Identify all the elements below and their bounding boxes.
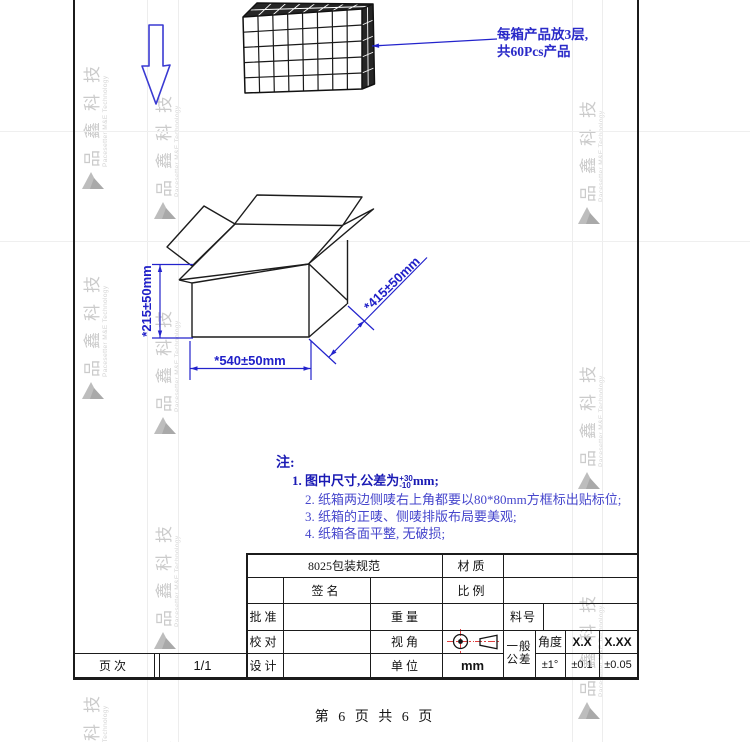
stack-leader-line bbox=[372, 39, 497, 48]
dim-width-label: *540±50mm bbox=[214, 353, 285, 368]
gridline bbox=[147, 0, 148, 742]
dim-depth-label: *415±50mm bbox=[361, 254, 423, 314]
tolerance-lower: -10 bbox=[399, 482, 413, 489]
dec2-tolerance-value: ±0.05 bbox=[599, 653, 637, 677]
note-1-unit: mm; bbox=[413, 473, 439, 488]
note-4: 4. 纸箱各面平整, 无破损; bbox=[305, 523, 445, 542]
stack-annotation-line2: 共60Pcs产品 bbox=[497, 43, 588, 60]
first-angle-projection-icon bbox=[447, 629, 501, 654]
frame-right-border bbox=[637, 0, 639, 680]
frame-bottom-border bbox=[73, 677, 638, 680]
page-index-value: 1/1 bbox=[159, 653, 246, 677]
note-1: 1. 图中尺寸,公差为+30-10mm; bbox=[292, 470, 439, 489]
watermark-en-text: Pacesetter M&E Technology bbox=[102, 247, 109, 377]
general-tolerance-line2: 公差 bbox=[507, 654, 532, 667]
watermark-cn-text: 品鑫科技 bbox=[574, 72, 599, 202]
dimension-width: *540±50mm bbox=[190, 341, 311, 380]
part-no-label: 料号 bbox=[503, 603, 543, 630]
unit-value: mm bbox=[442, 653, 503, 677]
watermark-cn-text: 品鑫科技 bbox=[150, 282, 175, 412]
dec1-label: X.X bbox=[565, 630, 599, 653]
table-line bbox=[154, 653, 155, 677]
design-label: 设计 bbox=[246, 653, 283, 677]
watermark-en-text: Pacesetter M&E Technology bbox=[102, 37, 109, 167]
signature-label: 签名 bbox=[283, 577, 370, 603]
dimension-depth: *415±50mm bbox=[309, 254, 427, 364]
watermark-logo-icon bbox=[152, 199, 178, 226]
angle-label: 角度 bbox=[535, 630, 565, 653]
watermark-cn-text: 品鑫科技 bbox=[78, 37, 103, 167]
weight-label: 重量 bbox=[370, 603, 442, 630]
watermark-logo-icon bbox=[152, 414, 178, 441]
dec2-label: X.XX bbox=[599, 630, 637, 653]
watermark-logo-icon bbox=[152, 629, 178, 656]
general-tolerance-label: 一般 公差 bbox=[503, 630, 535, 677]
view-angle-label: 视角 bbox=[370, 630, 442, 653]
note-1-tolerance: +30-10 bbox=[399, 475, 413, 489]
table-line bbox=[543, 603, 544, 630]
watermark-logo-icon bbox=[80, 169, 106, 196]
watermark-text: 品鑫科技Pacesetter M&E Technology bbox=[78, 247, 112, 377]
dec1-tolerance-value: ±0.1 bbox=[565, 653, 599, 677]
watermark-cn-text: 品鑫科技 bbox=[150, 67, 175, 197]
frame-left-border bbox=[73, 0, 75, 680]
angle-tolerance-value: ±1° bbox=[535, 653, 565, 677]
carton-drawing bbox=[167, 195, 374, 337]
page-index-label: 页次 bbox=[74, 653, 154, 677]
general-tolerance-line1: 一般 bbox=[507, 641, 532, 654]
check-label: 校对 bbox=[246, 630, 283, 653]
watermark-cn-text: 品鑫科技 bbox=[78, 247, 103, 377]
document-title: 8025包装规范 bbox=[246, 553, 442, 577]
stack-annotation-line1: 每箱产品放3层, bbox=[497, 26, 588, 43]
product-stack-drawing bbox=[243, 3, 375, 93]
unit-label: 单位 bbox=[370, 653, 442, 677]
watermark-unit: 品鑫科技Pacesetter M&E Technology bbox=[78, 255, 112, 405]
watermark-text: 品鑫科技Pacesetter M&E Technology bbox=[78, 37, 112, 167]
gridline bbox=[178, 0, 179, 742]
scale-label: 比例 bbox=[442, 577, 503, 603]
watermark-cn-text: 品鑫科技 bbox=[150, 497, 175, 627]
note-1-text: 1. 图中尺寸,公差为 bbox=[292, 473, 399, 488]
footer-page-text: 第 6 页 共 6 页 bbox=[0, 706, 750, 726]
watermark-logo-icon bbox=[80, 379, 106, 406]
watermark-unit: 品鑫科技Pacesetter M&E Technology bbox=[78, 45, 112, 195]
notes-heading: 注: bbox=[276, 452, 295, 472]
approve-label: 批准 bbox=[246, 603, 283, 630]
watermark-logo-icon bbox=[576, 204, 602, 231]
material-label: 材质 bbox=[442, 553, 503, 577]
watermark-cn-text: 品鑫科技 bbox=[574, 337, 599, 467]
stack-annotation: 每箱产品放3层, 共60Pcs产品 bbox=[497, 26, 588, 60]
drawing-sheet: 品鑫科技Pacesetter M&E Technology品鑫科技Paceset… bbox=[0, 0, 750, 742]
